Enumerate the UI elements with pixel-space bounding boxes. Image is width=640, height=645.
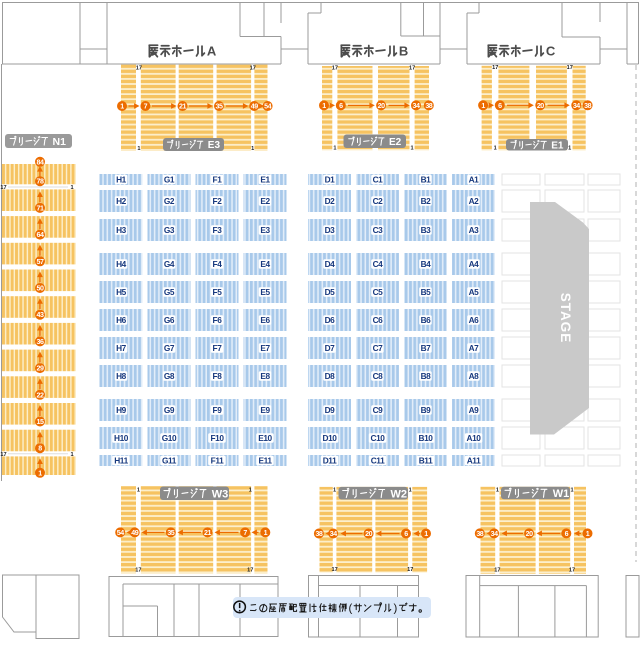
- svg-text:1: 1: [586, 530, 590, 538]
- svg-text:H9: H9: [116, 405, 127, 415]
- svg-text:F4: F4: [213, 259, 223, 269]
- svg-text:6: 6: [404, 530, 408, 538]
- svg-text:A6: A6: [469, 315, 480, 325]
- svg-text:D6: D6: [325, 315, 336, 325]
- svg-text:F6: F6: [213, 315, 223, 325]
- svg-text:W2: W2: [391, 488, 408, 500]
- svg-text:H3: H3: [116, 225, 127, 235]
- svg-text:20: 20: [378, 102, 385, 110]
- svg-text:A: A: [207, 44, 217, 59]
- svg-text:38: 38: [584, 102, 591, 110]
- svg-text:A9: A9: [469, 405, 480, 415]
- svg-text:E7: E7: [260, 343, 270, 353]
- svg-text:B: B: [399, 44, 408, 59]
- svg-text:21: 21: [179, 103, 186, 111]
- svg-text:29: 29: [37, 365, 44, 373]
- svg-text:E5: E5: [260, 287, 270, 297]
- svg-text:17: 17: [250, 65, 256, 71]
- svg-text:21: 21: [204, 529, 211, 537]
- svg-text:W3: W3: [212, 488, 229, 500]
- svg-text:20: 20: [365, 530, 372, 538]
- svg-text:F3: F3: [213, 225, 223, 235]
- svg-text:B4: B4: [421, 259, 432, 269]
- svg-text:F5: F5: [213, 287, 223, 297]
- svg-text:E11: E11: [258, 456, 272, 466]
- svg-text:1: 1: [70, 452, 73, 458]
- svg-text:B1: B1: [421, 175, 432, 185]
- svg-text:(: (: [349, 603, 353, 615]
- svg-text:B6: B6: [421, 315, 432, 325]
- svg-text:C: C: [546, 44, 556, 59]
- svg-text:): ): [394, 603, 398, 615]
- svg-text:17: 17: [567, 65, 573, 71]
- svg-text:H5: H5: [116, 287, 127, 297]
- svg-text:E2: E2: [260, 196, 270, 206]
- svg-text:C2: C2: [373, 196, 384, 206]
- svg-text:D7: D7: [325, 343, 336, 353]
- svg-text:D11: D11: [323, 456, 337, 466]
- svg-text:8: 8: [38, 445, 42, 453]
- svg-text:1: 1: [496, 488, 499, 494]
- svg-text:C5: C5: [373, 287, 384, 297]
- svg-text:G2: G2: [164, 196, 175, 206]
- svg-text:17: 17: [0, 452, 6, 458]
- svg-text:E1: E1: [260, 175, 270, 185]
- svg-text:D10: D10: [322, 433, 337, 443]
- svg-text:C11: C11: [371, 456, 385, 466]
- svg-text:C3: C3: [373, 225, 384, 235]
- svg-text:1: 1: [137, 146, 140, 152]
- svg-text:W1: W1: [553, 488, 570, 500]
- svg-text:G3: G3: [164, 225, 175, 235]
- svg-text:54: 54: [264, 103, 271, 111]
- svg-text:A1: A1: [469, 175, 480, 185]
- svg-text:C9: C9: [373, 405, 384, 415]
- svg-text:1: 1: [494, 146, 497, 152]
- svg-text:6: 6: [498, 102, 502, 110]
- svg-text:1: 1: [409, 488, 412, 494]
- svg-text:B2: B2: [421, 196, 432, 206]
- svg-text:6: 6: [339, 102, 343, 110]
- svg-text:G8: G8: [164, 371, 175, 381]
- svg-text:17: 17: [494, 568, 500, 574]
- svg-text:A5: A5: [469, 287, 480, 297]
- svg-text:H1: H1: [116, 175, 127, 185]
- svg-text:A3: A3: [469, 225, 480, 235]
- svg-text:43: 43: [37, 311, 44, 319]
- svg-text:H2: H2: [116, 196, 127, 206]
- svg-text:C10: C10: [370, 433, 385, 443]
- svg-text:7: 7: [243, 529, 247, 537]
- svg-text:1: 1: [333, 146, 336, 152]
- svg-text:A8: A8: [469, 371, 480, 381]
- svg-text:57: 57: [37, 258, 44, 266]
- svg-text:D8: D8: [325, 371, 336, 381]
- svg-text:G1: G1: [164, 175, 175, 185]
- svg-text:A7: A7: [469, 343, 480, 353]
- svg-text:15: 15: [37, 418, 44, 426]
- svg-text:17: 17: [407, 567, 413, 573]
- svg-text:20: 20: [526, 530, 533, 538]
- svg-text:34: 34: [573, 102, 580, 110]
- svg-text:38: 38: [425, 102, 432, 110]
- svg-text:C8: C8: [373, 371, 384, 381]
- svg-text:64: 64: [37, 231, 44, 239]
- svg-text:B7: B7: [421, 343, 432, 353]
- svg-text:G9: G9: [164, 405, 175, 415]
- svg-text:1: 1: [568, 146, 571, 152]
- svg-text:1: 1: [481, 102, 485, 110]
- svg-text:D4: D4: [325, 259, 336, 269]
- svg-text:34: 34: [330, 530, 337, 538]
- svg-text:17: 17: [247, 568, 253, 574]
- svg-text:H4: H4: [116, 259, 127, 269]
- svg-text:A10: A10: [466, 433, 481, 443]
- svg-text:1: 1: [249, 488, 252, 494]
- svg-text:1: 1: [411, 146, 414, 152]
- svg-text:E3: E3: [260, 225, 270, 235]
- svg-text:E10: E10: [258, 433, 272, 443]
- svg-text:B11: B11: [419, 456, 433, 466]
- svg-text:F1: F1: [213, 175, 223, 185]
- svg-text:20: 20: [537, 102, 544, 110]
- svg-text:E1: E1: [551, 141, 564, 152]
- svg-text:H11: H11: [114, 456, 128, 466]
- svg-text:35: 35: [216, 103, 223, 111]
- svg-text:50: 50: [37, 285, 44, 293]
- svg-text:1: 1: [570, 488, 573, 494]
- svg-text:F11: F11: [211, 456, 224, 466]
- svg-text:F10: F10: [210, 433, 224, 443]
- svg-text:E3: E3: [208, 140, 221, 151]
- svg-text:17: 17: [332, 66, 338, 72]
- svg-text:D2: D2: [325, 196, 336, 206]
- svg-text:D5: D5: [325, 287, 336, 297]
- svg-text:38: 38: [476, 530, 483, 538]
- svg-text:G4: G4: [164, 259, 175, 269]
- svg-text:78: 78: [37, 178, 44, 186]
- svg-text:7: 7: [144, 103, 148, 111]
- svg-text:49: 49: [131, 529, 138, 537]
- svg-text:A4: A4: [469, 259, 480, 269]
- svg-text:G7: G7: [164, 343, 175, 353]
- svg-text:A2: A2: [469, 196, 480, 206]
- svg-text:E4: E4: [260, 259, 270, 269]
- svg-text:34: 34: [413, 102, 420, 110]
- svg-text:17: 17: [136, 65, 142, 71]
- svg-text:H7: H7: [116, 343, 127, 353]
- svg-text:F2: F2: [213, 196, 223, 206]
- svg-text:17: 17: [135, 568, 141, 574]
- svg-text:H6: H6: [116, 315, 127, 325]
- svg-text:1: 1: [333, 488, 336, 494]
- svg-text:34: 34: [491, 530, 498, 538]
- svg-text:E9: E9: [260, 405, 270, 415]
- svg-text:C6: C6: [373, 315, 384, 325]
- svg-text:49: 49: [251, 103, 258, 111]
- svg-text:17: 17: [492, 65, 498, 71]
- svg-text:17: 17: [569, 568, 575, 574]
- svg-text:G11: G11: [162, 456, 177, 466]
- svg-text:D3: D3: [325, 225, 336, 235]
- svg-text:E2: E2: [389, 137, 402, 148]
- svg-text:1: 1: [322, 102, 326, 110]
- svg-text:35: 35: [167, 529, 174, 537]
- svg-text:36: 36: [37, 338, 44, 346]
- svg-text:G5: G5: [164, 287, 175, 297]
- svg-text:C7: C7: [373, 343, 384, 353]
- svg-text:71: 71: [37, 204, 44, 212]
- svg-text:D9: D9: [325, 405, 336, 415]
- svg-text:B10: B10: [418, 433, 433, 443]
- svg-text:STAGE: STAGE: [558, 293, 573, 344]
- svg-text:1: 1: [70, 185, 73, 191]
- svg-text:H8: H8: [116, 371, 127, 381]
- svg-text:G10: G10: [162, 433, 177, 443]
- svg-text:54: 54: [117, 529, 124, 537]
- svg-text:1: 1: [137, 488, 140, 494]
- svg-text:17: 17: [0, 185, 6, 191]
- svg-text:17: 17: [409, 66, 415, 72]
- svg-text:22: 22: [37, 391, 44, 399]
- svg-text:1: 1: [424, 530, 428, 538]
- svg-text:B5: B5: [421, 287, 432, 297]
- svg-text:F9: F9: [213, 405, 223, 415]
- svg-text:N1: N1: [53, 136, 67, 148]
- svg-text:D1: D1: [325, 175, 336, 185]
- svg-text:B3: B3: [421, 225, 432, 235]
- svg-text:E8: E8: [260, 371, 270, 381]
- svg-text:A11: A11: [467, 456, 481, 466]
- svg-text:H10: H10: [114, 433, 129, 443]
- svg-text:G6: G6: [164, 315, 175, 325]
- svg-text:6: 6: [565, 530, 569, 538]
- svg-text:F8: F8: [213, 371, 223, 381]
- svg-text:C1: C1: [373, 175, 384, 185]
- svg-text:B8: B8: [421, 371, 432, 381]
- svg-text:38: 38: [315, 530, 322, 538]
- svg-text:1: 1: [120, 103, 124, 111]
- svg-text:84: 84: [37, 158, 44, 166]
- svg-text:C4: C4: [373, 259, 384, 269]
- svg-text:1: 1: [38, 469, 42, 477]
- svg-text:1: 1: [251, 146, 254, 152]
- svg-text:17: 17: [331, 567, 337, 573]
- svg-text:B9: B9: [421, 405, 432, 415]
- svg-text:1: 1: [264, 529, 268, 537]
- svg-text:F7: F7: [213, 343, 223, 353]
- svg-text:E6: E6: [260, 315, 270, 325]
